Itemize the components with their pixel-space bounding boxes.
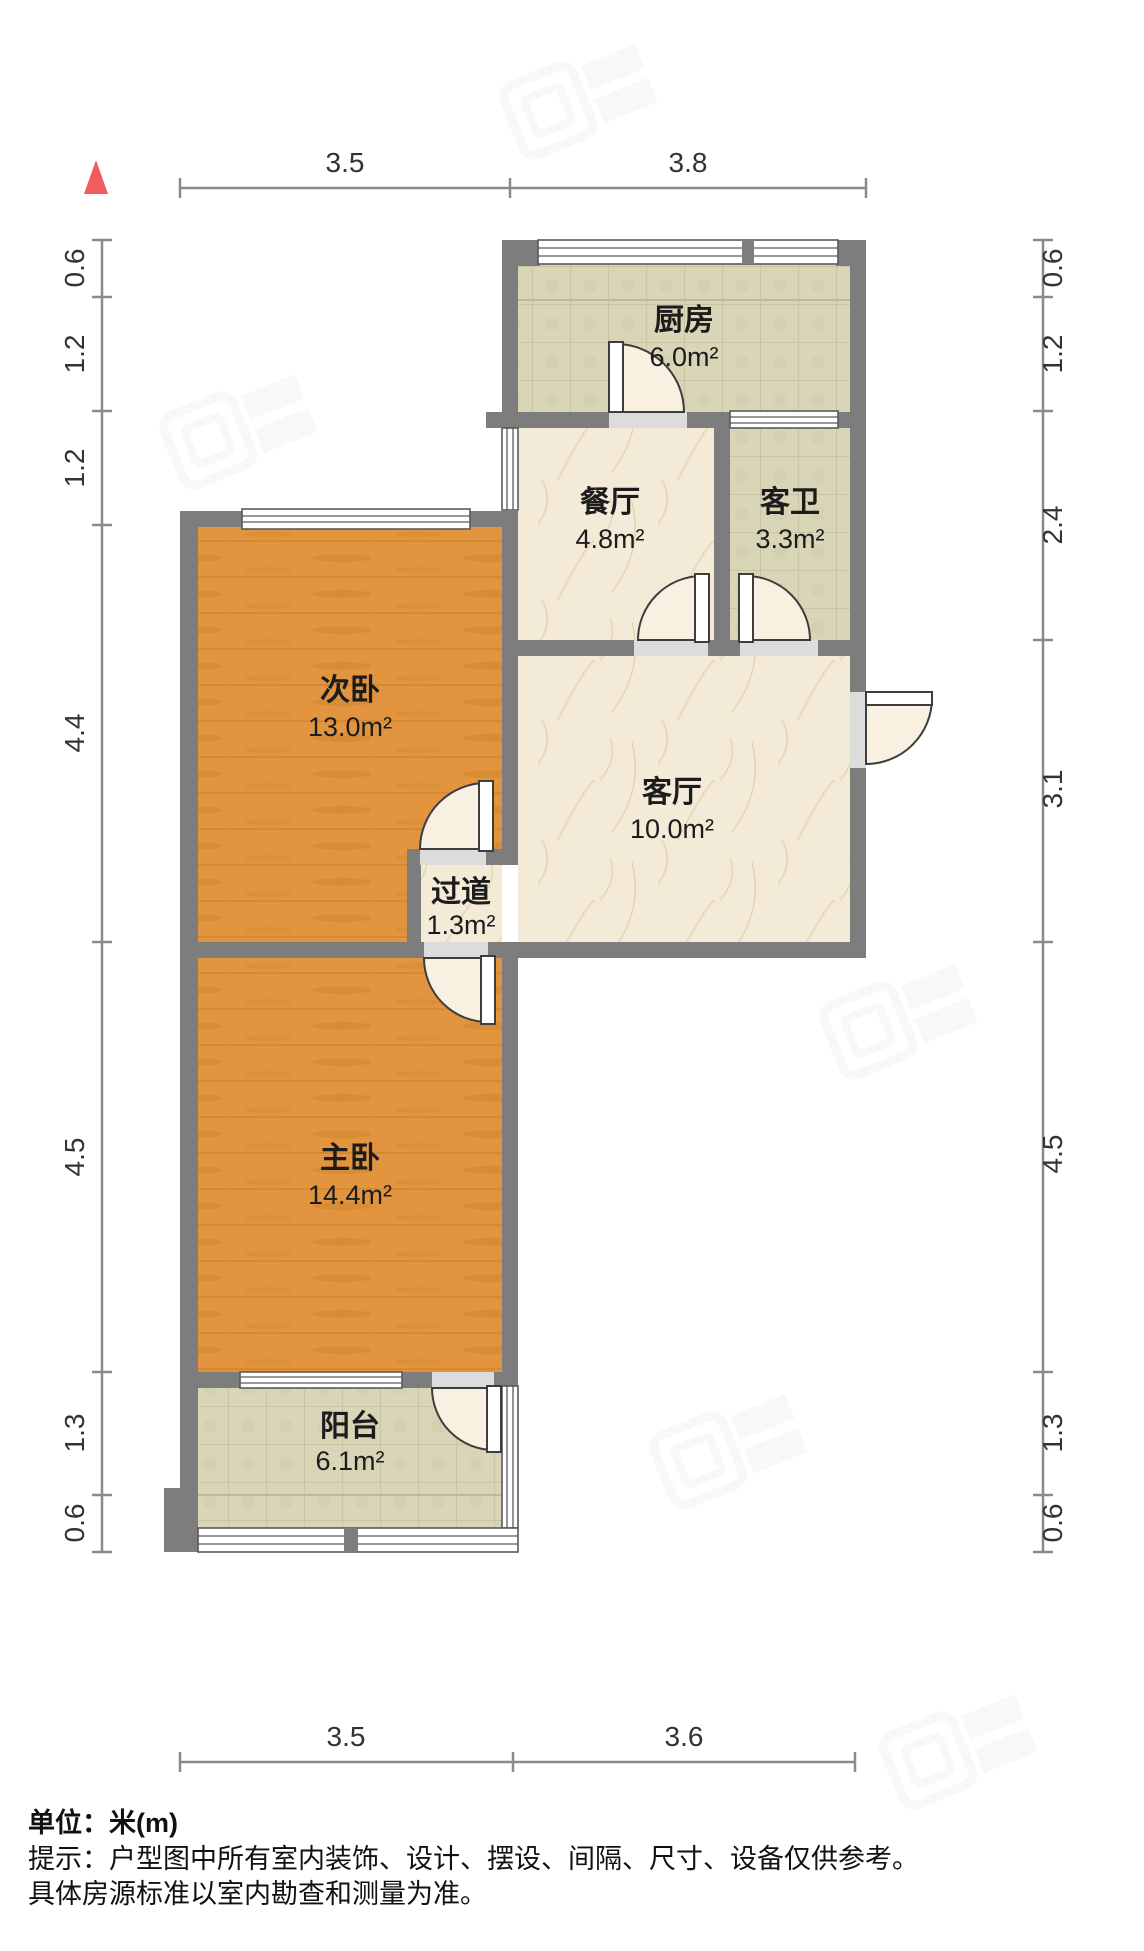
wall — [180, 511, 198, 1552]
room-label-balcony: 阳台 — [320, 1409, 380, 1443]
dim-left-3: 1.2 — [59, 449, 90, 488]
dim-bottom-2: 3.6 — [665, 1721, 704, 1752]
balcony-door-sill — [432, 1372, 494, 1388]
room-label-master-bedroom: 主卧 — [320, 1142, 380, 1175]
wall — [516, 240, 540, 266]
wall — [502, 240, 518, 428]
dim-right-7: 0.6 — [1037, 1504, 1068, 1543]
room-area-living: 10.0m² — [630, 814, 714, 844]
room-label-kitchen: 厨房 — [654, 304, 714, 337]
wall — [180, 1528, 198, 1552]
wall — [407, 849, 421, 958]
dim-bottom-1: 3.5 — [327, 1721, 366, 1752]
dim-right-1: 0.6 — [1037, 249, 1068, 288]
room-area-balcony: 6.1m² — [315, 1446, 384, 1476]
room-area-master-bedroom: 14.4m² — [308, 1180, 392, 1210]
room-area-guest-bath: 3.3m² — [755, 524, 824, 554]
dim-top-2: 3.8 — [669, 147, 708, 178]
second-bedroom-door-sill — [420, 849, 486, 865]
floorplan-page: 厨房 6.0m² 餐厅 4.8m² 客卫 3.3m² 次卧 13.0m² 客厅 … — [0, 0, 1144, 1951]
dim-left-5: 4.5 — [59, 1138, 90, 1177]
dim-left-1: 0.6 — [59, 249, 90, 288]
kitchen-door-sill — [609, 412, 687, 428]
second-bedroom-window — [242, 509, 470, 529]
room-label-guest-bath: 客卫 — [760, 485, 820, 519]
footer-notes: 单位：米(m) 提示：户型图中所有室内装饰、设计、摆设、间隔、尺寸、设备仅供参考… — [28, 1806, 919, 1913]
wall — [502, 958, 518, 1372]
wall — [850, 240, 866, 958]
unit-note: 单位：米(m) — [28, 1806, 919, 1842]
disclaimer-line-1: 提示：户型图中所有室内装饰、设计、摆设、间隔、尺寸、设备仅供参考。 — [28, 1842, 919, 1878]
room-area-dining: 4.8m² — [575, 524, 644, 554]
room-area-kitchen: 6.0m² — [649, 342, 718, 372]
dim-right-6: 1.3 — [1037, 1414, 1068, 1453]
dim-right-2: 1.2 — [1037, 335, 1068, 374]
master-bedroom-door-sill — [424, 942, 488, 958]
disclaimer-line-2: 具体房源标准以室内勘查和测量为准。 — [28, 1877, 919, 1913]
dim-left-7: 0.6 — [59, 1504, 90, 1543]
kitchen-bath-pass-window — [730, 411, 838, 428]
dim-left-6: 1.3 — [59, 1414, 90, 1453]
balcony-bottom-window — [198, 1528, 518, 1552]
dim-right-5: 4.5 — [1037, 1135, 1068, 1174]
floorplan-drawing: 厨房 6.0m² 餐厅 4.8m² 客卫 3.3m² 次卧 13.0m² 客厅 … — [0, 0, 1144, 1951]
dining-left-window — [502, 428, 518, 510]
wall — [714, 412, 730, 656]
wall — [164, 1488, 180, 1552]
dim-right-3: 2.4 — [1037, 506, 1068, 545]
room-label-living: 客厅 — [642, 775, 702, 809]
kitchen-floor — [518, 264, 850, 412]
entry-door-sill — [850, 692, 866, 768]
dim-left-2: 1.2 — [59, 335, 90, 374]
wall — [502, 511, 518, 856]
room-label-dining: 餐厅 — [580, 486, 640, 519]
balcony-right-window — [502, 1386, 518, 1528]
room-area-second-bedroom: 13.0m² — [308, 712, 392, 742]
room-label-hallway: 过道 — [431, 876, 491, 909]
room-area-hallway: 1.3m² — [426, 910, 495, 940]
dim-top-1: 3.5 — [326, 147, 365, 178]
room-label-second-bedroom: 次卧 — [320, 674, 380, 707]
kitchen-top-window — [538, 240, 838, 264]
dim-right-4: 3.1 — [1037, 770, 1068, 809]
master-balcony-window — [240, 1372, 402, 1388]
wall — [180, 942, 866, 958]
dim-left-4: 4.4 — [59, 714, 90, 753]
